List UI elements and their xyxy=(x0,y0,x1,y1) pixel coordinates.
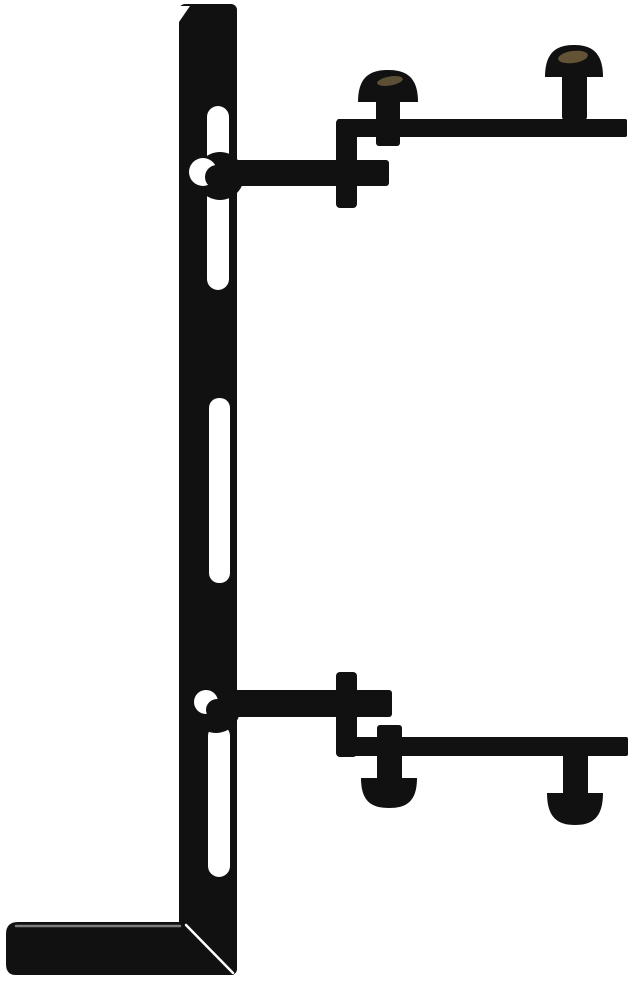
bracket-illustration-svg xyxy=(0,0,634,986)
product-image xyxy=(0,0,634,986)
bottom-screw-left-shank xyxy=(377,725,402,782)
column-slot-bottom xyxy=(208,725,230,877)
column-slot-middle xyxy=(209,398,230,583)
bottom-screw-right-shank xyxy=(563,753,588,798)
bottom-screw-right-head xyxy=(547,793,603,825)
top-screw-right-shank xyxy=(562,72,587,120)
top-screw-left-head xyxy=(358,70,418,102)
lower-bolt-core xyxy=(206,699,228,721)
lower-arm xyxy=(234,690,392,717)
upper-arm xyxy=(234,160,389,186)
upper-bolt-core xyxy=(205,165,229,189)
bottom-screw-left-head xyxy=(361,778,417,808)
top-screw-left-shank xyxy=(376,96,400,146)
